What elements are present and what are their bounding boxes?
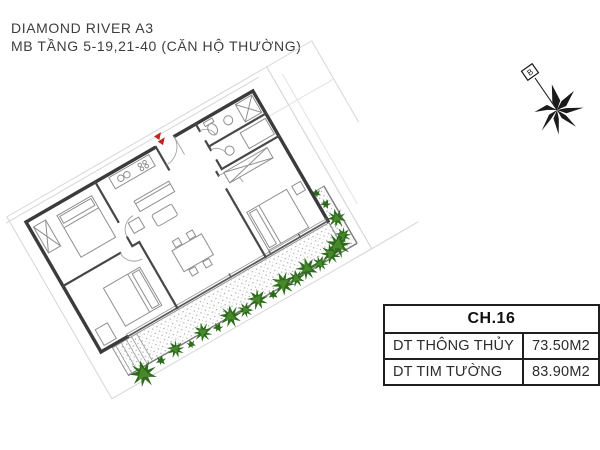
table-row: DT TIM TƯỜNG 83.90M2 bbox=[384, 359, 599, 385]
compass-north-flag: B bbox=[522, 64, 539, 80]
compass-star-icon bbox=[528, 77, 589, 139]
floorplan-group bbox=[3, 40, 423, 410]
area-gross-value: 83.90M2 bbox=[523, 359, 599, 385]
table-row: DT THÔNG THỦY 73.50M2 bbox=[384, 333, 599, 359]
table-header-row: CH.16 bbox=[384, 305, 599, 333]
coffee-table bbox=[151, 204, 177, 227]
entrance-marker-icon bbox=[153, 132, 167, 147]
page: DIAMOND RIVER A3 MB TẦNG 5-19,21-40 (CĂN… bbox=[0, 0, 600, 450]
area-gross-label: DT TIM TƯỜNG bbox=[384, 359, 523, 385]
area-clear-label: DT THÔNG THỦY bbox=[384, 333, 523, 359]
unit-info-table: CH.16 DT THÔNG THỦY 73.50M2 DT TIM TƯỜNG… bbox=[383, 304, 600, 386]
area-clear-value: 73.50M2 bbox=[523, 333, 599, 359]
unit-code: CH.16 bbox=[384, 305, 599, 333]
compass: B bbox=[522, 64, 590, 140]
